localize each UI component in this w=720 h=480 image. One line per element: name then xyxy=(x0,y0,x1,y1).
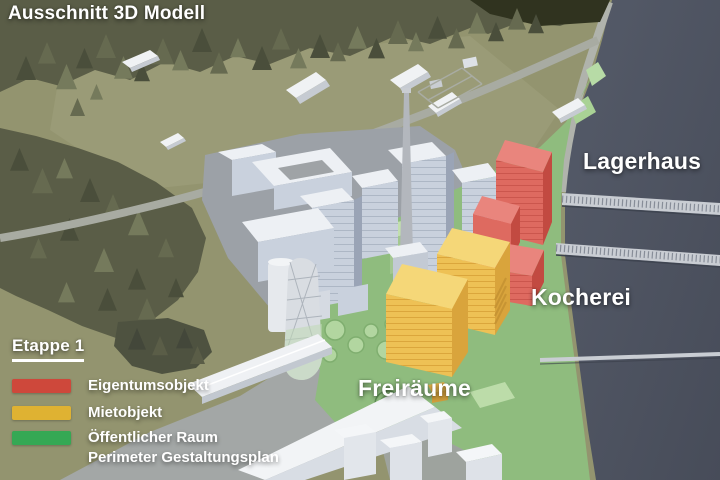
label-freiraeume: Freiräume xyxy=(358,375,471,402)
legend-heading: Etappe 1 xyxy=(12,336,84,362)
legend-item-oeffentlicher-raum: Öffentlicher Raum Perimeter Gestaltungsp… xyxy=(12,428,279,468)
legend-item-eigentumsobjekt: Eigentumsobjekt xyxy=(12,376,209,396)
legend-swatch-yellow xyxy=(12,406,71,420)
label-kocherei: Kocherei xyxy=(531,284,631,311)
legend-label: Mietobjekt xyxy=(88,403,162,423)
legend-label: Öffentlicher Raum Perimeter Gestaltungsp… xyxy=(88,428,279,468)
legend-swatch-red xyxy=(12,379,71,393)
legend-item-mietobjekt: Mietobjekt xyxy=(12,403,162,423)
legend-label-line-1: Öffentlicher Raum xyxy=(88,428,279,448)
3d-model-view: Ausschnitt 3D Modell Lagerhaus Kocherei … xyxy=(0,0,720,480)
legend-label: Eigentumsobjekt xyxy=(88,376,209,396)
page-title: Ausschnitt 3D Modell xyxy=(8,3,205,25)
label-lagerhaus: Lagerhaus xyxy=(583,148,701,175)
legend-label-line-2: Perimeter Gestaltungsplan xyxy=(88,448,279,468)
legend-swatch-green xyxy=(12,431,71,445)
